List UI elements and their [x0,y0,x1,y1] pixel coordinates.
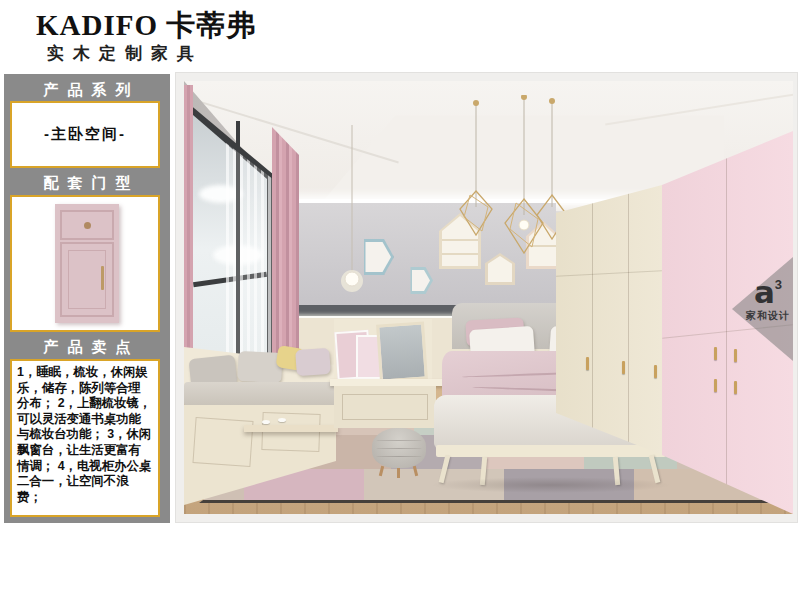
wardrobe-door-seam [726,151,727,503]
wardrobe-door-seam [628,189,629,445]
door-handle-icon [101,266,104,290]
brand-tagline: 实木定制家具 [47,42,203,65]
wardrobe-door-seam [592,195,593,439]
bedroom-photo-frame: a3 家和设计 [175,72,798,523]
door-lower-panel [60,242,114,317]
wardrobe-handle [622,361,625,374]
watermark-caption: 家和设计 [742,311,793,321]
series-value-box: -主卧空间- [10,101,160,168]
selling-points-box: 1，睡眠，梳妆，休闲娱乐，储存，陈列等合理分布； 2，上翻梳妆镜，可以灵活变通书… [10,359,160,517]
vanity-backboard [334,319,432,381]
selling-points-list: 1，睡眠，梳妆，休闲娱乐，储存，陈列等合理分布； 2，上翻梳妆镜，可以灵活变通书… [12,361,158,509]
catalog-page: KADIFO 卡蒂弗 实木定制家具 产品系列 -主卧空间- 配套门型 产品卖点 … [0,0,800,600]
seat-pillow [295,348,331,376]
door-knob-icon [84,222,91,229]
door-section-title: 配套门型 [4,174,170,193]
pouf-leg [397,468,400,478]
door-drawer-front [60,210,114,240]
wardrobe-handle [586,357,589,370]
seat-pillow [237,351,283,383]
pouf-stool [372,428,426,468]
vanity-mirror [376,321,428,382]
wardrobe-handle [714,379,717,392]
wardrobe-cream-doors [546,121,662,514]
teacup [278,418,286,422]
watermark-logo: a3 家和设计 [742,277,793,321]
series-value: -主卧空间- [12,103,158,166]
series-section-title: 产品系列 [4,81,170,100]
door-sample-image [55,204,119,323]
wardrobe-handle [654,365,657,378]
bedroom-photo: a3 家和设计 [184,81,793,514]
wardrobe-handle [734,349,737,362]
wardrobe-door-seam [556,270,662,277]
window-seat-cushion [184,382,338,407]
wardrobe-handle [734,381,737,394]
door-style-box [10,195,160,332]
selling-section-title: 产品卖点 [4,338,170,357]
wardrobe-handle [714,347,717,360]
vanity-drawer [342,394,428,420]
watermark-logo-mark: a3 [742,277,793,308]
product-info-sidebar: 产品系列 -主卧空间- 配套门型 产品卖点 1，睡眠，梳妆，休闲娱乐，储存，陈列… [4,74,170,523]
teacup [262,420,270,424]
vanity-desktop [330,379,444,386]
vanity-cabinet [334,386,436,428]
pullout-tray [244,425,338,432]
seat-drawer [261,412,320,452]
brand-logo-text: KADIFO 卡蒂弗 [36,6,256,46]
